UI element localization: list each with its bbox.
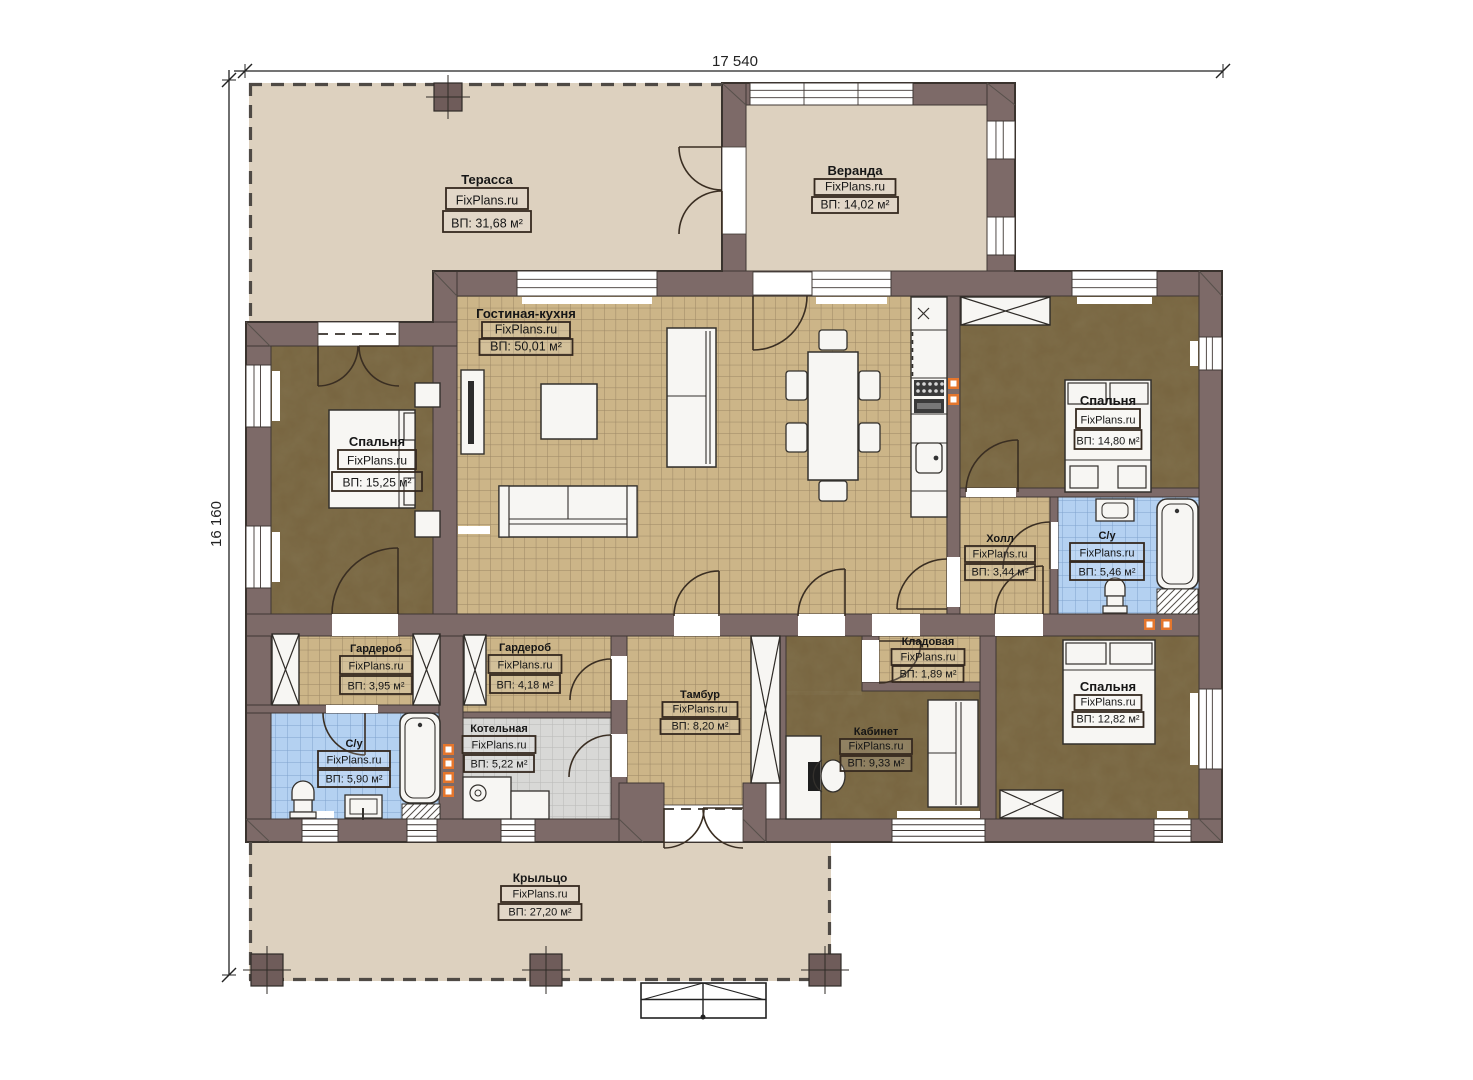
svg-text:ВП: 15,25 м²: ВП: 15,25 м² xyxy=(343,476,412,490)
svg-text:17 540: 17 540 xyxy=(712,53,758,70)
svg-text:ВП: 4,18 м²: ВП: 4,18 м² xyxy=(496,680,553,692)
svg-text:FixPlans.ru: FixPlans.ru xyxy=(512,889,567,901)
svg-text:ВП: 5,22 м²: ВП: 5,22 м² xyxy=(470,759,527,771)
svg-text:ВП: 5,90 м²: ВП: 5,90 м² xyxy=(325,774,382,786)
svg-text:ВП: 50,01 м²: ВП: 50,01 м² xyxy=(490,340,562,354)
svg-text:FixPlans.ru: FixPlans.ru xyxy=(456,194,519,208)
svg-text:FixPlans.ru: FixPlans.ru xyxy=(1080,697,1135,709)
svg-text:FixPlans.ru: FixPlans.ru xyxy=(497,660,552,672)
svg-text:ВП: 5,46 м²: ВП: 5,46 м² xyxy=(1078,567,1135,579)
svg-text:FixPlans.ru: FixPlans.ru xyxy=(326,755,381,767)
svg-text:FixPlans.ru: FixPlans.ru xyxy=(848,741,903,753)
svg-text:Кабинет: Кабинет xyxy=(854,726,899,738)
svg-text:Терасса: Терасса xyxy=(461,172,513,187)
svg-text:FixPlans.ru: FixPlans.ru xyxy=(471,740,526,752)
svg-text:ВП: 31,68 м²: ВП: 31,68 м² xyxy=(451,217,523,231)
svg-text:ВП: 8,20 м²: ВП: 8,20 м² xyxy=(671,721,728,733)
svg-text:FixPlans.ru: FixPlans.ru xyxy=(825,180,885,194)
svg-text:Котельная: Котельная xyxy=(470,723,528,735)
svg-text:Веранда: Веранда xyxy=(827,163,883,178)
svg-text:Спальня: Спальня xyxy=(1080,679,1136,694)
svg-text:ВП: 27,20 м²: ВП: 27,20 м² xyxy=(508,907,572,919)
svg-text:ВП: 14,80 м²: ВП: 14,80 м² xyxy=(1076,436,1140,448)
svg-text:Кладовая: Кладовая xyxy=(902,636,955,648)
svg-text:FixPlans.ru: FixPlans.ru xyxy=(348,661,403,673)
svg-text:FixPlans.ru: FixPlans.ru xyxy=(900,652,955,664)
svg-text:FixPlans.ru: FixPlans.ru xyxy=(1080,415,1135,427)
svg-text:ВП: 3,95 м²: ВП: 3,95 м² xyxy=(347,681,404,693)
svg-text:ВП: 9,33 м²: ВП: 9,33 м² xyxy=(847,758,904,770)
svg-text:16 160: 16 160 xyxy=(208,501,225,547)
svg-text:Гостиная-кухня: Гостиная-кухня xyxy=(476,306,576,321)
svg-text:С/у: С/у xyxy=(1098,530,1116,542)
svg-text:ВП: 12,82 м²: ВП: 12,82 м² xyxy=(1076,714,1140,726)
svg-text:ВП: 1,89 м²: ВП: 1,89 м² xyxy=(899,669,956,681)
svg-text:Крыльцо: Крыльцо xyxy=(513,871,568,885)
svg-text:Спальня: Спальня xyxy=(1080,393,1136,408)
svg-text:Спальня: Спальня xyxy=(349,434,405,449)
svg-text:FixPlans.ru: FixPlans.ru xyxy=(972,549,1027,561)
svg-text:FixPlans.ru: FixPlans.ru xyxy=(672,704,727,716)
svg-text:Гардероб: Гардероб xyxy=(350,643,402,655)
svg-text:FixPlans.ru: FixPlans.ru xyxy=(1079,548,1134,560)
svg-text:FixPlans.ru: FixPlans.ru xyxy=(347,454,407,468)
svg-text:Гардероб: Гардероб xyxy=(499,642,551,654)
svg-text:FixPlans.ru: FixPlans.ru xyxy=(495,323,558,337)
svg-text:ВП: 14,02 м²: ВП: 14,02 м² xyxy=(821,198,890,212)
svg-text:Холл: Холл xyxy=(986,533,1014,545)
svg-text:Тамбур: Тамбур xyxy=(680,689,720,701)
svg-text:С/у: С/у xyxy=(345,738,363,750)
svg-text:ВП: 3,44 м²: ВП: 3,44 м² xyxy=(971,567,1028,579)
